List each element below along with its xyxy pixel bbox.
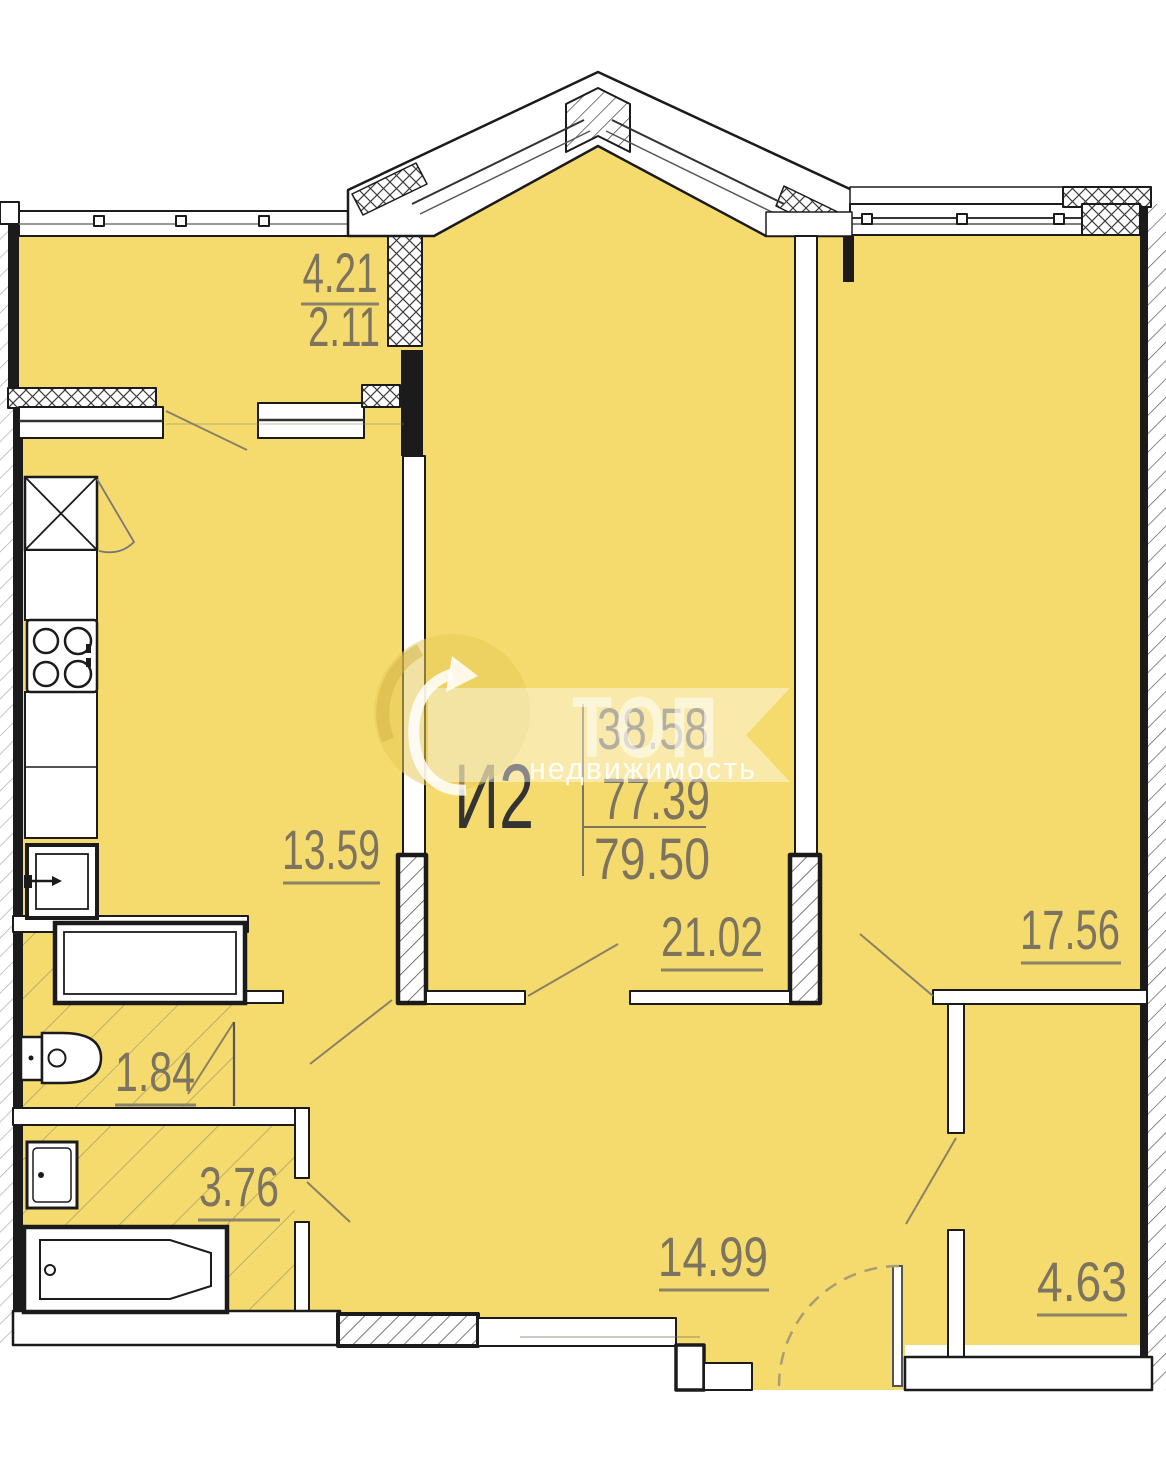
right-neighbor-wall-hatch <box>1148 204 1166 1390</box>
room-label-hallway: 14.99 <box>658 1225 768 1288</box>
kitchen-window-1 <box>19 407 163 438</box>
room-label-balcony-reduced: 2.11 <box>308 295 380 358</box>
unit-area-total: 79.50 <box>594 827 710 892</box>
floor-plan-page: 4.21 2.11 13.59 21.02 17.56 1.84 3.76 14… <box>0 0 1166 1468</box>
kitchen-pier <box>398 855 426 1003</box>
kitchen-counter <box>25 550 97 620</box>
toilet-icon <box>21 1033 101 1083</box>
living-bedroom-wall <box>795 236 817 855</box>
bottom-wall-pier <box>338 1314 478 1346</box>
room-label-wardrobe: 4.63 <box>1037 1250 1127 1313</box>
kitchen-sink-icon <box>24 845 97 918</box>
living-pier <box>790 855 820 1003</box>
wardrobe-bottom-wall <box>905 1357 1152 1390</box>
bedroom-bottom-wall <box>933 990 1147 1004</box>
room-label-living: 21.02 <box>661 905 763 968</box>
kitchen-counter-2 <box>25 692 97 838</box>
kitchen-window-2 <box>258 403 364 438</box>
stove-icon <box>27 620 97 692</box>
entrance-door-leaf <box>893 1266 902 1386</box>
bedroom-window <box>850 187 1082 235</box>
room-label-kitchen: 13.59 <box>282 818 380 881</box>
room-label-bedroom: 17.56 <box>1020 898 1120 961</box>
wc-bath-wall <box>13 1108 309 1125</box>
right-outer-wall <box>1140 204 1148 1390</box>
bathroom-bottom-wall <box>13 1311 340 1345</box>
balcony-window <box>19 211 388 236</box>
room-label-bathroom: 3.76 <box>199 1155 279 1218</box>
bathtub-icon <box>24 1227 227 1312</box>
left-outer-wall <box>13 390 23 1345</box>
room-label-wc: 1.84 <box>115 1040 195 1103</box>
washbasin-icon <box>27 1142 77 1208</box>
watermark-sub-text: недвижимость <box>529 751 757 786</box>
floor-plan-svg: 4.21 2.11 13.59 21.02 17.56 1.84 3.76 14… <box>0 0 1166 1468</box>
wc-cabinet <box>55 923 245 1003</box>
